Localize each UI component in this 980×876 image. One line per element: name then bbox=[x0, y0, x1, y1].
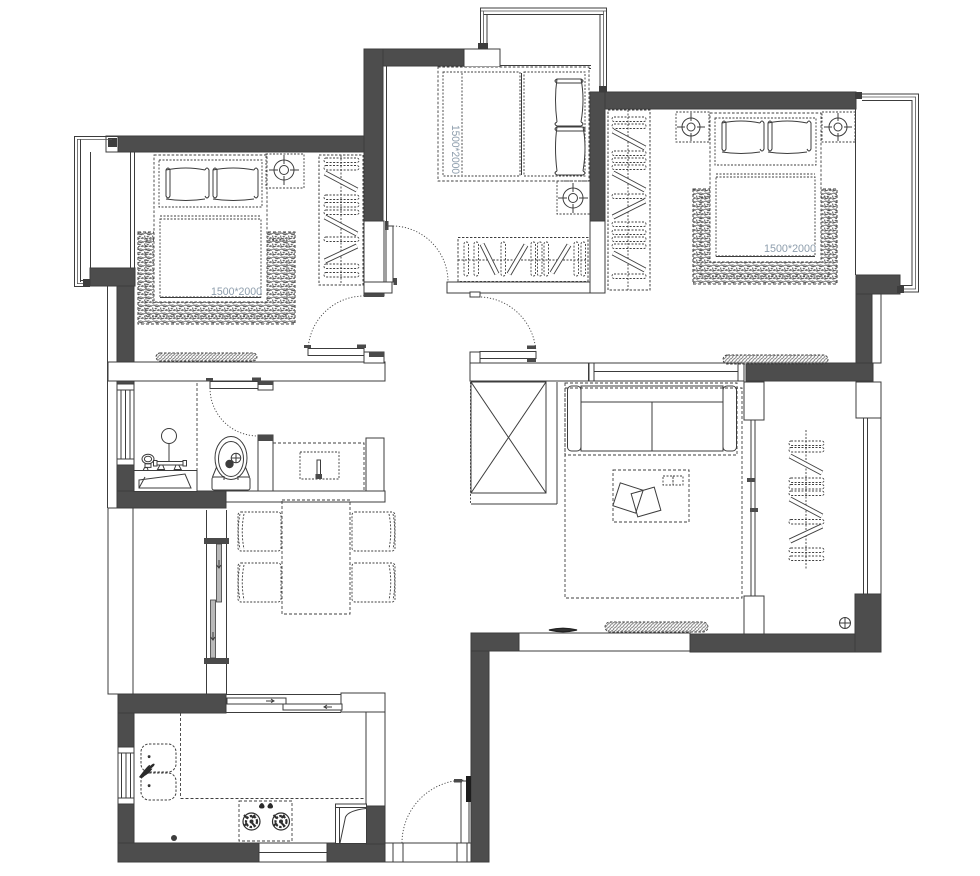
svg-text:1500*2000: 1500*2000 bbox=[211, 286, 262, 298]
svg-text:1500*2000: 1500*2000 bbox=[764, 243, 816, 255]
svg-text:1500*2000: 1500*2000 bbox=[449, 125, 461, 174]
